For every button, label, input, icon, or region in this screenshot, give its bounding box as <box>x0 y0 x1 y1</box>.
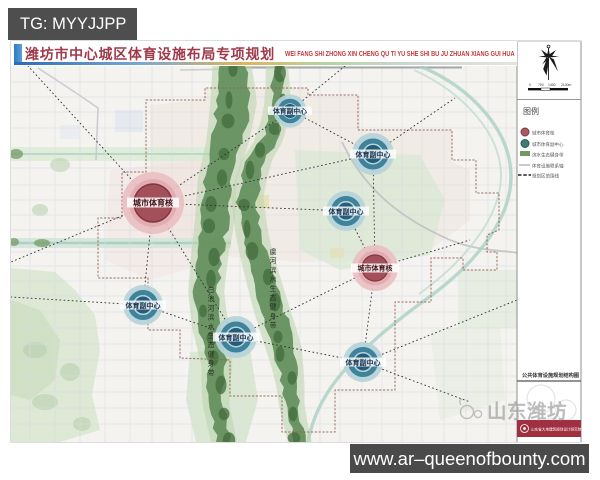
svg-text:体育副中心: 体育副中心 <box>346 358 381 367</box>
svg-text:体育设施联系轴: 体育设施联系轴 <box>532 163 564 170</box>
svg-text:图例: 图例 <box>523 106 539 116</box>
svg-text:体育副中心: 体育副中心 <box>329 207 364 216</box>
svg-text:体育副中心: 体育副中心 <box>356 150 391 159</box>
svg-text:体育副中心: 体育副中心 <box>126 301 161 310</box>
svg-text:城市体育副中心: 城市体育副中心 <box>532 141 564 148</box>
svg-text:虞河滨水生态健身带: 虞河滨水生态健身带 <box>270 247 277 330</box>
svg-text:体育副中心: 体育副中心 <box>273 107 307 116</box>
svg-text:公共体育设施规划结构图: 公共体育设施规划结构图 <box>522 371 579 379</box>
svg-text:城市体育核: 城市体育核 <box>358 264 393 273</box>
svg-text:2100m: 2100m <box>561 83 572 87</box>
svg-text:体育副中心: 体育副中心 <box>219 333 254 342</box>
svg-text:城市体育核: 城市体育核 <box>532 130 555 137</box>
svg-text:0: 0 <box>529 83 531 87</box>
svg-text:规划区范围线: 规划区范围线 <box>532 173 559 180</box>
svg-text:700: 700 <box>538 83 544 87</box>
svg-text:滨水生态健身带: 滨水生态健身带 <box>532 152 564 159</box>
svg-text:城市体育核: 城市体育核 <box>133 198 173 208</box>
svg-text:山东潍坊: 山东潍坊 <box>487 400 567 423</box>
svg-text:1400: 1400 <box>548 83 556 87</box>
svg-text:山东省大地建筑规划设计研究院: 山东省大地建筑规划设计研究院 <box>531 427 582 432</box>
